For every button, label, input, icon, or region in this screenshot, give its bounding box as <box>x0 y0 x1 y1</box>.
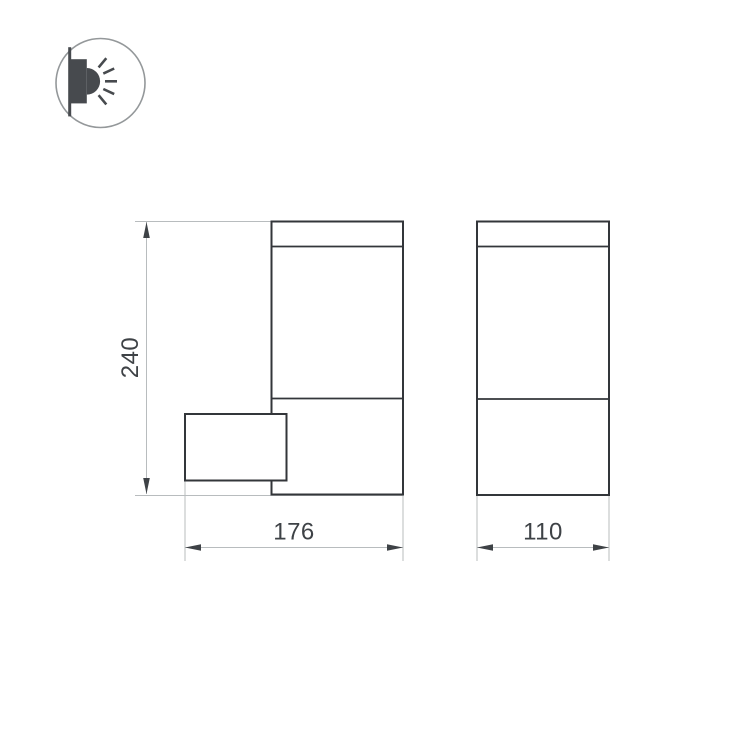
side-view-wall-bracket <box>185 414 287 481</box>
depth-dimension-label: 176 <box>273 519 315 546</box>
light-ray-icon <box>103 69 114 74</box>
front-view-body <box>477 222 609 496</box>
width-dimension-label: 110 <box>523 519 563 546</box>
product-dimensional-drawing: 240 176 110 <box>0 0 750 750</box>
drawing-canvas: 240 176 110 <box>0 0 750 750</box>
side-view-body <box>272 222 404 495</box>
icon-lamp-body <box>71 59 87 103</box>
arrow-up-icon <box>143 222 150 238</box>
arrow-left-icon <box>477 544 493 551</box>
light-ray-icon <box>99 58 107 67</box>
light-ray-icon <box>103 89 114 94</box>
wall-light-icon <box>56 39 145 128</box>
arrow-right-icon <box>387 544 403 551</box>
arrow-left-icon <box>185 544 201 551</box>
icon-light-rays <box>99 58 117 104</box>
front-view <box>477 222 609 496</box>
height-dimension-label: 240 <box>117 337 144 379</box>
arrow-down-icon <box>143 478 150 494</box>
light-ray-icon <box>99 95 107 104</box>
icon-wall-line <box>68 47 71 116</box>
arrow-right-icon <box>593 544 609 551</box>
icon-lamp-lens <box>87 68 100 95</box>
side-view <box>185 222 403 495</box>
